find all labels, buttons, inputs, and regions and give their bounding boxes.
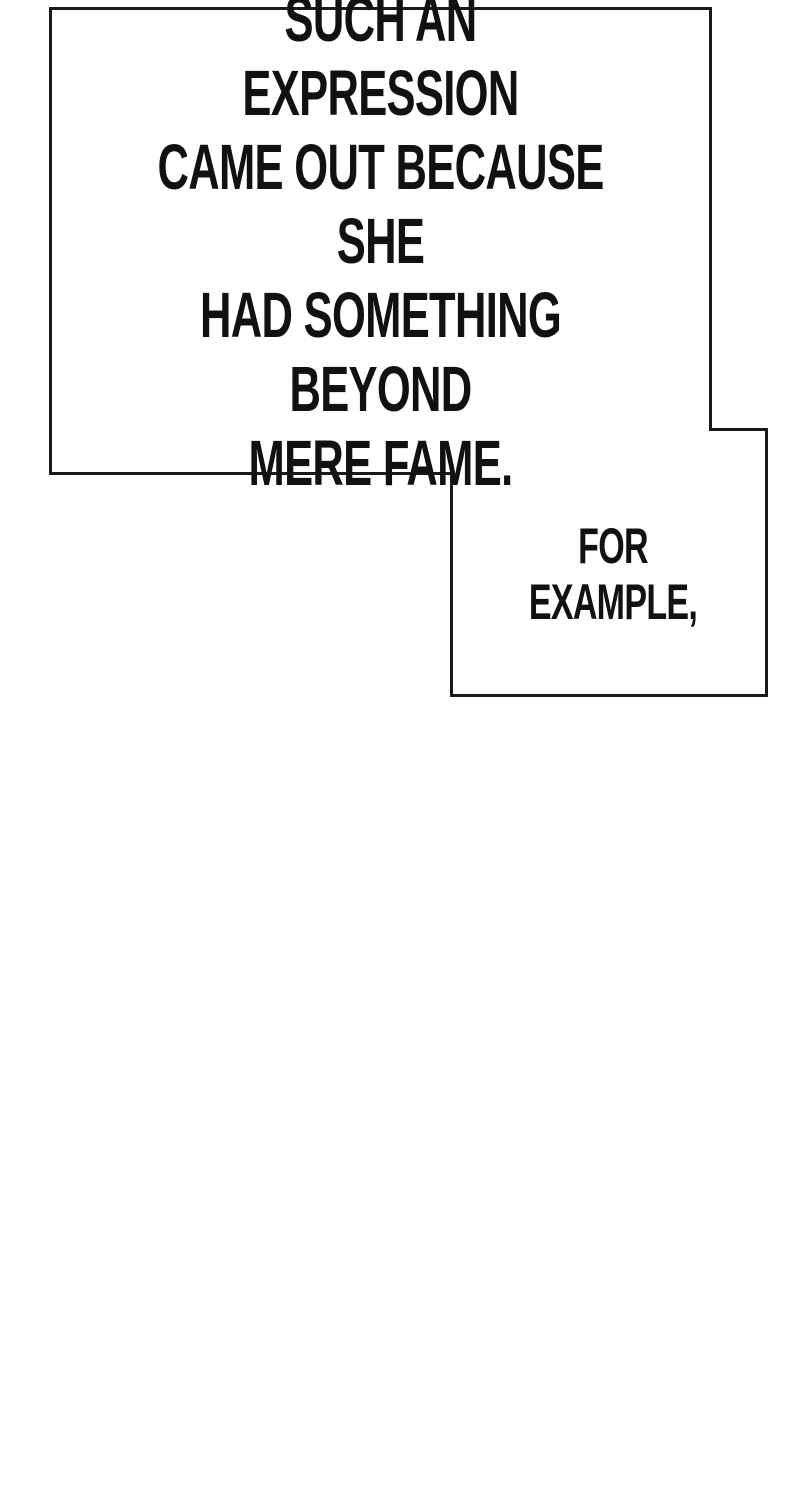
main-caption-box: SUCH AN EXPRESSION CAME OUT BECAUSE SHE … <box>50 8 711 474</box>
main-caption-text: SUCH AN EXPRESSION CAME OUT BECAUSE SHE … <box>156 0 605 500</box>
example-caption-box: FOR EXAMPLE, <box>451 430 767 696</box>
example-caption-text: FOR EXAMPLE, <box>508 518 717 630</box>
